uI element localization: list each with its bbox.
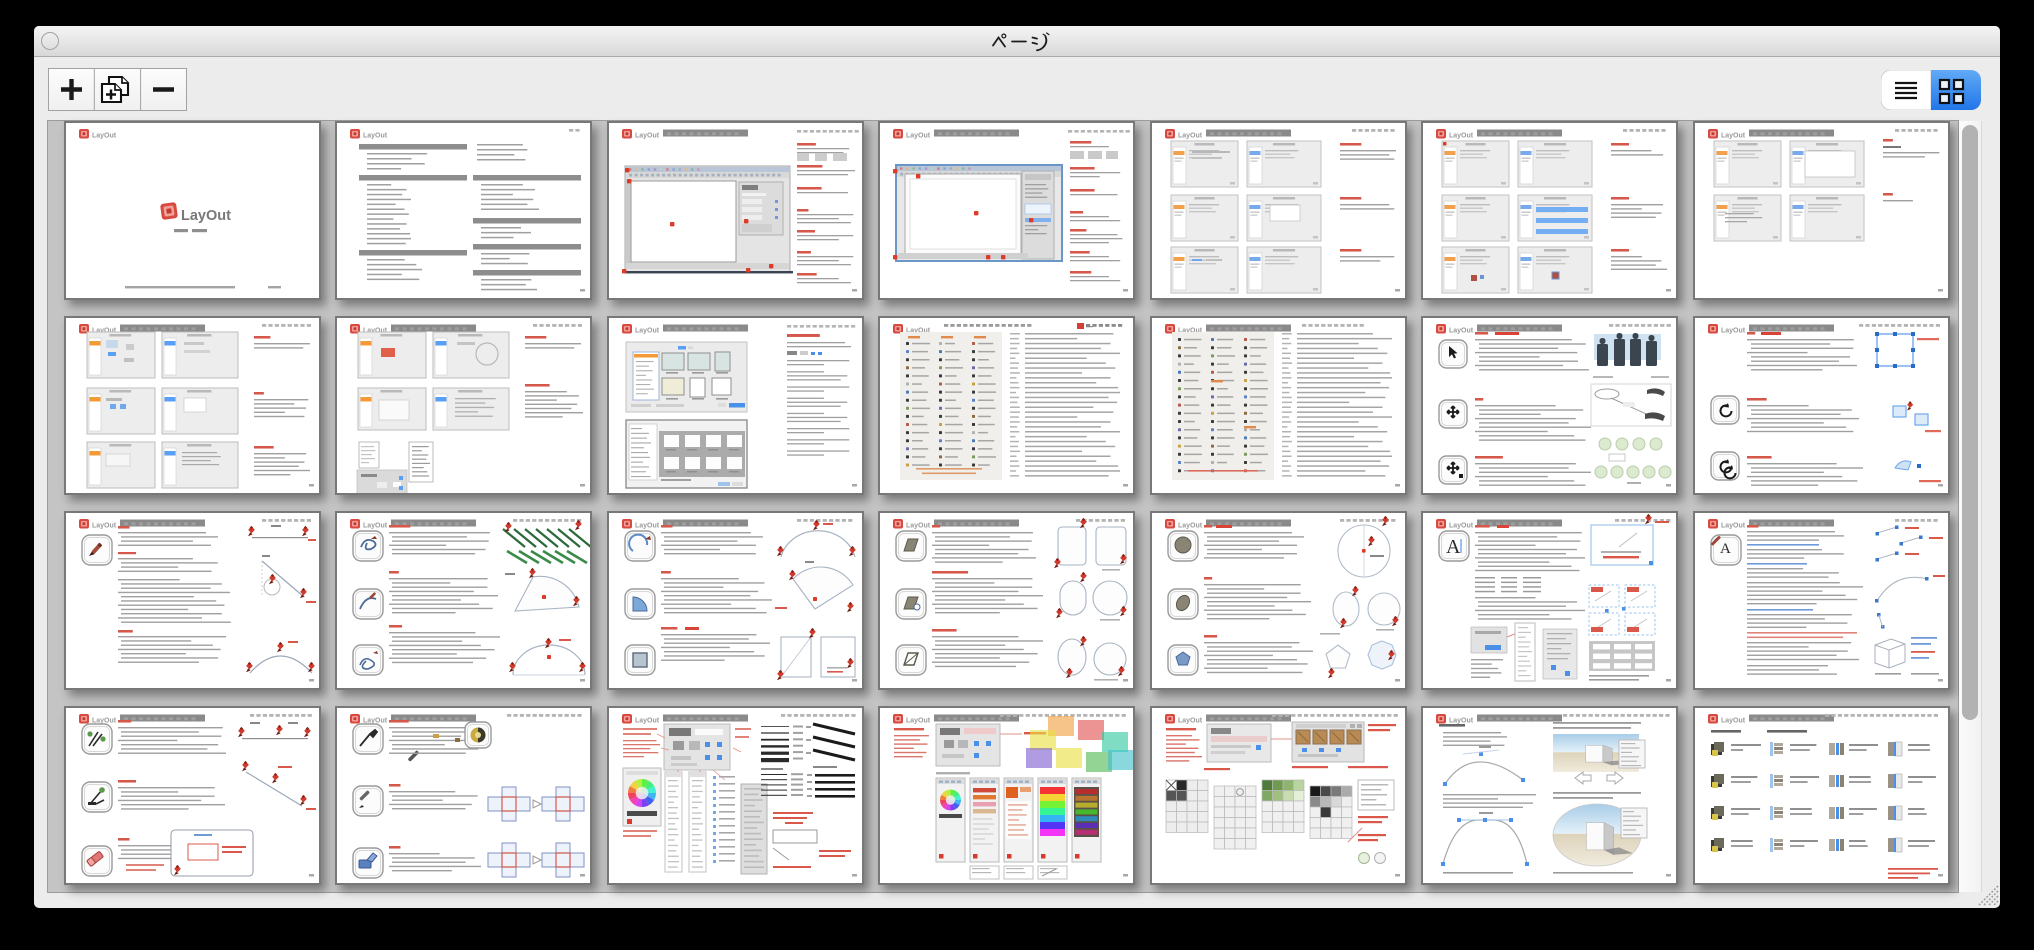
- svg-text:LayOut: LayOut: [181, 208, 231, 224]
- svg-text:LayOut: LayOut: [363, 132, 388, 139]
- svg-text:LayOut: LayOut: [906, 717, 931, 724]
- svg-text:LayOut: LayOut: [92, 132, 117, 139]
- svg-text:LayOut: LayOut: [906, 522, 931, 529]
- svg-text:LayOut: LayOut: [1721, 327, 1746, 334]
- svg-text:LayOut: LayOut: [1178, 132, 1203, 139]
- svg-text:LayOut: LayOut: [635, 717, 660, 724]
- svg-text:LayOut: LayOut: [906, 132, 931, 139]
- svg-text:LayOut: LayOut: [1449, 132, 1474, 139]
- svg-text:LayOut: LayOut: [635, 132, 660, 139]
- svg-text:LayOut: LayOut: [1449, 717, 1474, 724]
- svg-text:A: A: [1720, 541, 1731, 557]
- svg-text:LayOut: LayOut: [635, 522, 660, 529]
- svg-text:LayOut: LayOut: [1178, 522, 1203, 529]
- svg-text:LayOut: LayOut: [1178, 717, 1203, 724]
- svg-text:LayOut: LayOut: [1721, 522, 1746, 529]
- svg-text:LayOut: LayOut: [1721, 717, 1746, 724]
- svg-text:A: A: [1446, 536, 1461, 558]
- svg-text:LayOut: LayOut: [1449, 327, 1474, 334]
- svg-text:LayOut: LayOut: [1449, 522, 1474, 529]
- svg-text:LayOut: LayOut: [635, 327, 660, 334]
- svg-text:LayOut: LayOut: [92, 522, 117, 529]
- svg-text:LayOut: LayOut: [363, 522, 388, 529]
- svg-text:LayOut: LayOut: [1721, 132, 1746, 139]
